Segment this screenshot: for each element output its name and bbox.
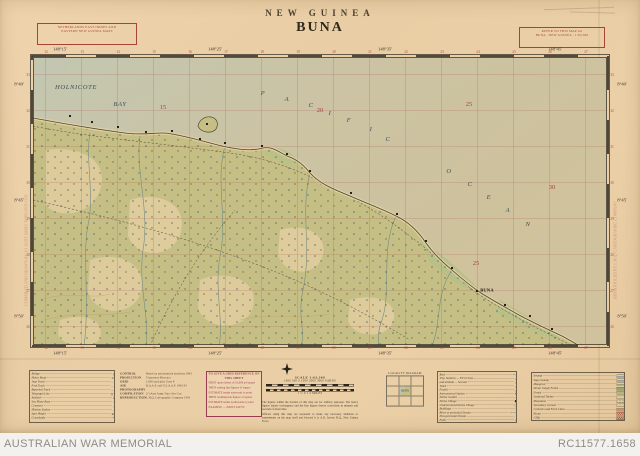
scale-yards-labels: 1000 500 0 1000 2000 3000 YARDS (262, 380, 358, 383)
legend-label: Non-perennial Stream (440, 415, 467, 418)
legend-vegetation-box: SwampSago SwampMangroveDense Jungle Fore… (531, 372, 625, 421)
legend-label: Foot Track (32, 385, 45, 388)
legend-label: Plantation (534, 400, 547, 403)
legend-label: Jeep Track (32, 381, 45, 384)
legend-label: Falls (440, 419, 446, 422)
grass-symbol: """ (111, 416, 115, 420)
legend-label: Astronomical Station (440, 392, 465, 395)
legend-label: Motor Road (32, 377, 47, 380)
spot-symbol: ·96 (111, 412, 115, 416)
scale-bars: SCALE 1:63,360 1000 500 0 1000 2000 3000… (262, 376, 358, 400)
note-label: AIR PHOTOGRAPHY (120, 384, 146, 392)
legend-label: and altitude — Second (440, 381, 467, 384)
legend-label: Bridge (32, 373, 40, 376)
north-point-icon (281, 363, 293, 375)
locality-cell-current: BUNA (399, 386, 411, 396)
road-symbol: ══ (112, 376, 115, 380)
hatch-swatch (617, 416, 626, 420)
legend-label: Spot Height (32, 413, 46, 416)
note-value: R.A.A.F. and U.S.A.A.F. 1942-43 (146, 384, 202, 392)
note-value: L.H.Q. Cartographic Company 1943 (146, 396, 202, 400)
telegraph-symbol: ┬┬┬ (110, 392, 115, 396)
legend-label: Cemetery (32, 405, 44, 408)
legend-label: River or perennial Stream (440, 411, 471, 414)
grid-reference-line: EXAMPLE — POINT 243752 (207, 405, 261, 410)
lines-swatch (617, 408, 626, 412)
legend-label: Forest (534, 391, 542, 394)
legend-label: Reef (440, 373, 445, 376)
legend-label: Scattered Timber (534, 396, 554, 399)
legend-label: Third (440, 385, 447, 388)
locality-cell (399, 376, 411, 386)
tint-swatch (617, 391, 626, 395)
locality-cell (411, 386, 423, 396)
tufts-swatch (617, 379, 626, 383)
locality-cell (411, 376, 423, 386)
dots-swatch (617, 400, 626, 404)
reported-symbol: –·– (112, 388, 115, 392)
locality-cell (411, 396, 423, 406)
seaplane-symbol: ⚓ (113, 400, 115, 404)
scale-bar-yards (266, 384, 354, 387)
legend-label: Fourth (440, 389, 448, 392)
amendment-note: Officers using this map are requested to… (262, 413, 358, 423)
dots-swatch (617, 395, 626, 399)
legend-label: Swamp (534, 375, 543, 378)
cemetery-symbol: + (113, 404, 115, 408)
legend-label: Cliffs (534, 417, 541, 420)
legend-label: Grasslands (32, 417, 46, 420)
marginal-notes: The figures within the borders of this m… (262, 401, 358, 427)
locality-caption: LOCALITY DIAGRAM (386, 372, 424, 375)
locality-cell (399, 396, 411, 406)
artillery-note: The figures within the borders of this m… (262, 401, 358, 411)
legend-label: Telegraph Line (32, 393, 50, 396)
map-sheet: NEW GUINEA BUNA NETHERLANDS EAST INDIES … (0, 0, 640, 433)
note-label: REPRODUCTION (120, 396, 146, 400)
compilation-notes: CONTROLBased on astronomical positions 1… (120, 372, 202, 422)
legend-label: Reported Track (32, 389, 51, 392)
foot-symbol: ····· (111, 384, 115, 388)
legend-label: Trig. Stations — First Class (440, 377, 474, 380)
airfield-symbol: ⊕ (113, 396, 115, 400)
locality-cell (387, 396, 399, 406)
mission-symbol: + (113, 408, 115, 412)
legend-row: Grasslands""" (32, 416, 116, 420)
tufts-swatch (617, 383, 626, 387)
note-row: AIR PHOTOGRAPHYR.A.A.F. and U.S.A.A.F. 1… (120, 384, 202, 392)
legend-label: Kunai (534, 412, 541, 415)
scale-miles-labels: 1 ½ 0 1 2 MILES (262, 392, 358, 395)
legend-label: Airfield (32, 397, 41, 400)
bridge-symbol: )( (113, 372, 115, 376)
archive-reference: RC11577.1658 (558, 438, 636, 450)
screenshot: NEW GUINEA BUNA NETHERLANDS EAST INDIES … (0, 0, 640, 456)
note-row: REPRODUCTIONL.H.Q. Cartographic Company … (120, 396, 202, 400)
legend-lines-box: Bridge)(Motor Road══Jeep Track– –Foot Tr… (29, 370, 115, 423)
legend-label: Undetermined Native Village (440, 404, 475, 407)
legend-label: Dense Jungle Forest (534, 387, 559, 390)
grid-reference-heading: TO GIVE A GRID REFERENCE ON THIS SHEET (207, 372, 261, 381)
legend-label: Secondary Growth (534, 404, 556, 407)
legend-label: Buildings (440, 408, 452, 411)
legend-label: Native Garden (440, 396, 458, 399)
grid-reference-box: TO GIVE A GRID REFERENCE ON THIS SHEET F… (206, 371, 262, 417)
locality-diagram: LOCALITY DIAGRAM BUNA (386, 372, 424, 412)
legend-symbols-box: Reef≈≈Trig. Stations — First Class△and a… (437, 371, 517, 423)
legend-label: Contours and Form Lines (534, 408, 565, 411)
locality-cell (387, 376, 399, 386)
falls-symbol: ≡ (515, 419, 517, 423)
archive-footer: AUSTRALIAN WAR MEMORIAL RC11577.1658 (0, 433, 640, 456)
legend-row: Falls≡ (440, 419, 518, 423)
dots-swatch (617, 404, 626, 408)
tint-swatch (617, 387, 626, 391)
legend-label: Mission Station (32, 409, 51, 412)
tufts-swatch (617, 374, 626, 378)
locality-grid: BUNA (386, 376, 424, 407)
legend-label: Sago Swamp (534, 379, 549, 382)
legend-label: Native Village (440, 400, 457, 403)
legend-label: Sea Plane Base (32, 401, 51, 404)
jeep-symbol: – – (112, 380, 115, 384)
locality-cell (387, 386, 399, 396)
map-canvas (0, 0, 640, 433)
archive-holder: AUSTRALIAN WAR MEMORIAL (4, 438, 172, 450)
hatch-swatch (617, 412, 626, 416)
legend-row: Cliffs (534, 416, 626, 420)
legend-label: Mangrove (534, 383, 546, 386)
